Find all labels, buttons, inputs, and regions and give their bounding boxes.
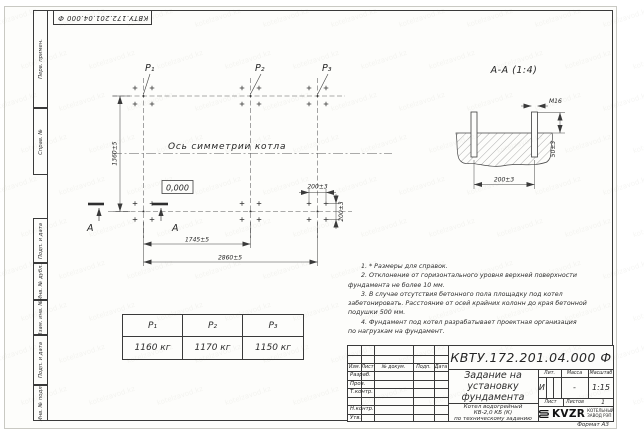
tb-scale-label: Масштаб: [588, 369, 614, 377]
tb-doc-number: КВТУ.172.201.04.000 Ф: [448, 346, 614, 369]
tb-row-tkontr: Т.контр.: [348, 388, 374, 397]
loads-table-header-p1: P₁: [123, 315, 183, 337]
loads-table-value-p1: 1160 кг: [123, 337, 183, 359]
margin-field-perv-primen: Перв. примен.: [33, 10, 48, 108]
top-stamp-docnumber: КВТУ.172.201.04.000 Ф: [57, 14, 147, 22]
note-line: 2. Отклонение от горизонтального уровня …: [348, 271, 616, 280]
tb-row-utv: Утв.: [348, 414, 374, 423]
tb-sheet-label: Лист: [538, 398, 563, 406]
watermark-text: kotelzavod.kz: [632, 301, 644, 323]
kvzr-logo-icon: [538, 408, 550, 420]
tb-title: Задание на установку фундамента: [448, 370, 538, 403]
tb-col-data: Дата: [434, 363, 448, 371]
watermark-text: kotelzavod.kz: [632, 217, 644, 239]
tb-mass-label: Масса: [561, 369, 588, 377]
watermark-text: kotelzavod.kz: [632, 49, 644, 71]
loads-table-header-p2: P₂: [183, 315, 243, 337]
format-label: Формат А3: [561, 422, 625, 428]
loads-table: P₁ P₂ P₃ 1160 кг 1170 кг 1150 кг: [122, 314, 304, 360]
tb-lit-value: И: [538, 377, 546, 398]
watermark-text: kotelzavod.kz: [632, 385, 644, 407]
note-line: подушки 500 мм.: [348, 308, 616, 317]
watermark-text: kotelzavod.kz: [632, 133, 644, 155]
loads-table-value-p2: 1170 кг: [183, 337, 243, 359]
loads-table-header-p3: P₃: [243, 315, 303, 337]
margin-field-podp-data-2: Подп. и дата: [33, 335, 48, 385]
tb-lit-label: Лит.: [538, 369, 561, 377]
tb-mass-value: -: [561, 377, 588, 398]
top-stamp-box: КВТУ.172.201.04.000 Ф: [53, 10, 152, 25]
tb-sheets-value: 1: [596, 398, 610, 406]
margin-field-inv-podl: Инв. № подл.: [33, 385, 48, 421]
notes-block: 1. * Размеры для справок. 2. Отклонение …: [348, 262, 616, 336]
note-line: забетонировать. Расстояние от осей крайн…: [348, 299, 616, 308]
title-block: Изм. Лист № докум. Подп. Дата Разраб. Пр…: [347, 345, 614, 422]
margin-field-sprav-no: Справ. №: [33, 108, 48, 175]
kvzr-logo: KVZR КОТЕЛЬНЫЙ ЗАВОД РЭП: [538, 406, 614, 422]
tb-row-nkontr: Н.контр.: [348, 405, 374, 414]
tb-row-razrab: Разраб.: [348, 371, 374, 380]
loads-table-value-p3: 1150 кг: [243, 337, 303, 359]
note-line: фундамента не более 10 мм.: [348, 281, 616, 290]
kvzr-logo-text: KVZR: [552, 408, 585, 420]
tb-row-blank: [348, 397, 374, 406]
note-line: по нагрузкам на фундамент.: [348, 327, 616, 336]
margin-field-inv-dubl: Инв. № дубл.: [33, 263, 48, 300]
margin-field-vzam-inv: Взам. инв. №: [33, 300, 48, 335]
note-line: 4. Фундамент под котел разрабатывает про…: [348, 318, 616, 327]
tb-sheets-label: Листов: [566, 398, 592, 406]
tb-row-prov: Пров.: [348, 380, 374, 389]
note-line: 3. В случае отсутствия бетонного пола пл…: [348, 290, 616, 299]
note-line: 1. * Размеры для справок.: [348, 262, 616, 271]
tb-col-izm: Изм.: [348, 363, 361, 371]
tb-product: Котел водогрейный КВ-2,0 КБ (К) по техни…: [448, 404, 538, 422]
kvzr-logo-subtitle: КОТЕЛЬНЫЙ ЗАВОД РЭП: [587, 409, 614, 418]
tb-col-dokum: № докум.: [374, 363, 413, 371]
tb-col-list: Лист: [361, 363, 374, 371]
tb-scale-value: 1:15: [588, 377, 614, 398]
tb-col-podp: Подп.: [413, 363, 434, 371]
margin-field-podp-data-1: Подп. и дата: [33, 218, 48, 263]
